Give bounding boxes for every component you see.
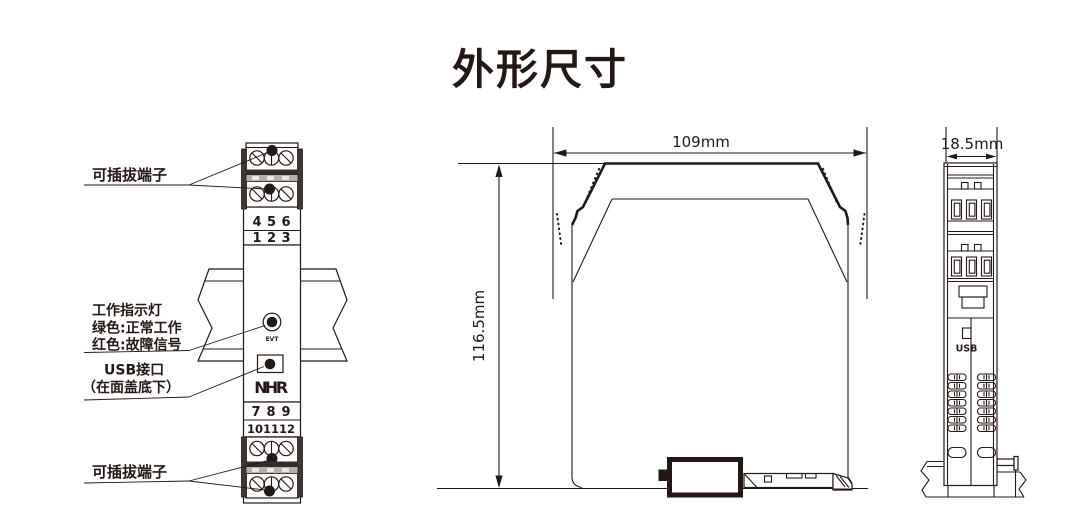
rail-break-edge [1019,472,1026,497]
terminal-dotted-outline [860,214,865,247]
screw-terminal-icon [279,187,293,201]
terminal-number: 8 [266,405,275,420]
din-rail-front-left [198,269,244,361]
nhr-logo: N H R [254,378,288,397]
module-side-profile [557,164,865,488]
terminal-dotted-outline [557,214,562,247]
dimension-width-end: 18.5mm [941,127,1004,167]
led-label: EVT [266,336,280,343]
usb-port [258,355,284,373]
terminal-number: 10 [247,422,263,436]
module-front: 4 5 6 1 2 3 EVT [242,143,303,503]
din-rail-front-right [300,269,347,361]
terminal-number: 2 [267,231,276,246]
dimension-drawing: 4 5 6 1 2 3 EVT [0,0,1080,523]
leader-dot [264,486,275,497]
usb-label-line1: USB接口 [104,362,164,379]
end-width-dimension-label: 18.5mm [941,135,1004,153]
callout-underline [84,397,189,400]
callout-usb: USB接口 （在面盖底下） [82,362,264,401]
cover-seam-lines [573,199,847,282]
callout-underline [84,481,189,483]
arrowhead-up [495,165,502,178]
end-view: 18.5mm [921,127,1026,497]
terminal-number: 3 [281,231,290,246]
screw-terminal-icon [279,477,293,491]
terminal-number: 11 [263,422,279,436]
callout-top-label: 可插拔端子 [92,166,167,184]
leader-dot [265,359,276,370]
dimension-width: 109mm [553,127,867,299]
led-indicator: EVT [263,313,281,343]
indicator-label-line1: 工作指示灯 [92,302,162,319]
terminal-number: 5 [267,215,276,230]
arrowhead-left [947,154,957,160]
bottom-terminal-block [242,437,303,498]
indicator-label-line2: 绿色:正常工作 [92,320,182,337]
dimension-height: 116.5mm [458,164,604,489]
terminal-number: 12 [279,422,295,436]
latch-pin [997,459,1014,466]
terminal-number: 6 [281,215,290,230]
logo-letter-r: R [276,378,288,397]
arrowhead-down [495,476,502,489]
terminal-number: 4 [252,215,261,230]
front-view: 4 5 6 1 2 3 EVT [82,143,347,503]
callout-bottom-label: 可插拔端子 [92,463,167,481]
screw-terminal-icon [250,151,264,165]
rail-latch [744,474,852,491]
screw-terminal-icon [250,441,264,455]
arrowhead-right [986,154,996,160]
module-end: USB [944,163,997,486]
arrowhead-right [854,149,867,156]
arrowhead-left [554,149,567,156]
usb-end-label: USB [956,344,978,355]
side-view: 116.5mm 109mm [437,127,868,495]
din-rail-clip [659,460,741,496]
screw-terminal-icon [279,151,293,165]
leader-dot [267,145,278,156]
height-dimension-label: 116.5mm [470,290,488,362]
screw-terminal-icon [279,441,293,455]
top-terminal-block [242,143,303,209]
width-dimension-label: 109mm [672,133,730,151]
outline-dimension-page: 外形尺寸 [0,0,1080,523]
terminal-number: 1 [252,231,261,246]
terminal-number: 9 [281,405,290,420]
usb-label-line2: （在面盖底下） [82,379,180,396]
terminal-number: 7 [251,405,260,420]
